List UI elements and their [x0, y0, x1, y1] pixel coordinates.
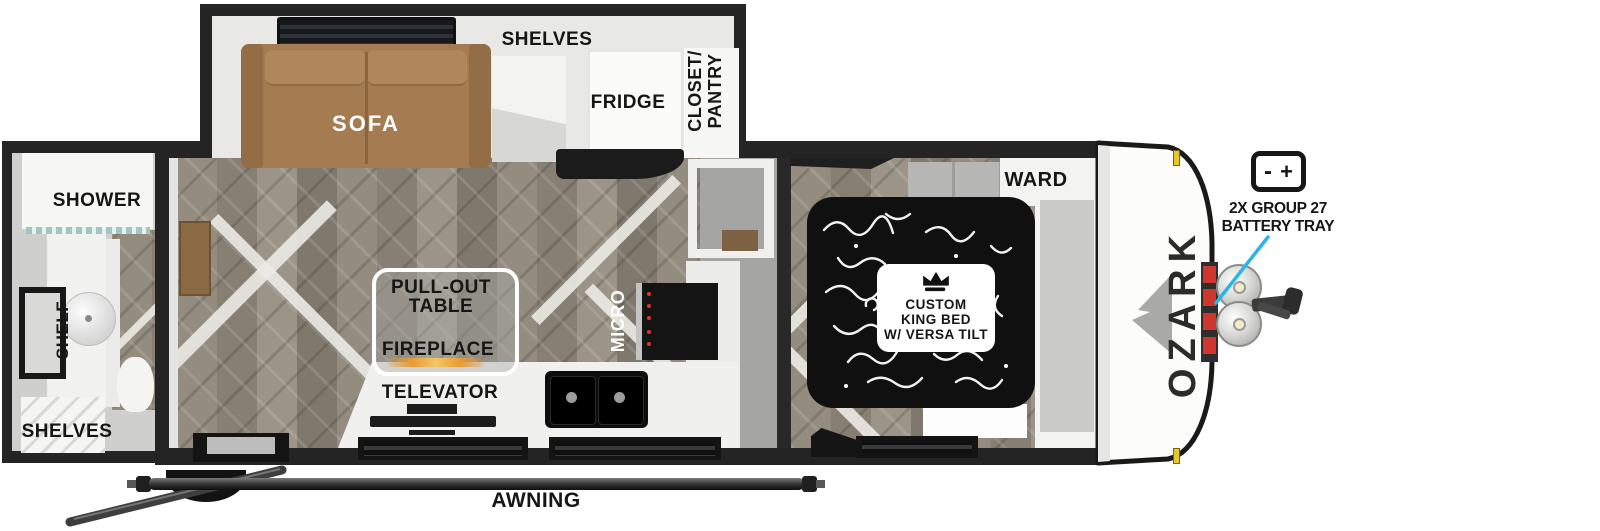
sofa-back-cushion — [265, 50, 365, 86]
microwave-led — [647, 316, 651, 320]
sink-faucet-dot — [614, 392, 625, 403]
kitchen-sink — [545, 371, 648, 428]
main-top-wall-right — [736, 141, 1106, 158]
clearance-light — [1173, 448, 1180, 464]
bedroom-divider-wall — [777, 158, 791, 448]
nook-shelf — [722, 230, 758, 251]
crown-icon — [920, 271, 952, 293]
nook-trim — [688, 159, 697, 258]
tank-valve — [1233, 318, 1246, 331]
step-rail — [60, 460, 290, 528]
awning-end-cap — [802, 476, 817, 492]
nook-trim — [688, 159, 774, 168]
sink-faucet-dot — [566, 392, 577, 403]
battery-icon: - + — [1251, 151, 1306, 192]
shower-label: SHOWER — [37, 191, 157, 212]
fridge-label: FRIDGE — [568, 93, 688, 114]
window — [549, 437, 721, 460]
microwave-led — [647, 330, 651, 334]
microwave — [636, 283, 718, 360]
sofa-arm-left — [241, 44, 263, 168]
fireplace-label: FIREPLACE — [358, 340, 518, 361]
battery-tray-label-line1: 2X GROUP 27 — [1212, 200, 1344, 217]
rv-floorplan: SHOWER SHELF SHELVES SOFA SHELVES FRIDGE… — [0, 0, 1600, 531]
sofa-label: SOFA — [306, 112, 426, 136]
microwave-led — [647, 304, 651, 308]
king-bed-line1: CUSTOM — [877, 298, 995, 313]
shower-glass — [26, 227, 150, 234]
ward-label: WARD — [976, 169, 1096, 191]
slide-shelves-unit — [492, 56, 566, 162]
closet-pantry-line1: CLOSET/ — [686, 31, 706, 151]
clearance-light — [1173, 150, 1180, 166]
microwave-led — [647, 342, 651, 346]
bed-base — [923, 404, 1027, 438]
slide-shelves-face — [492, 108, 566, 162]
bath-shelves-label: SHELVES — [6, 422, 128, 443]
living-left-wall-trim — [169, 158, 178, 448]
window — [856, 436, 978, 458]
entry-door-opening — [193, 433, 289, 462]
interior-door — [179, 221, 211, 296]
televator-tv — [370, 416, 496, 427]
king-bed-line2: KING BED — [877, 313, 995, 328]
closet-pantry-line2: PANTRY — [706, 31, 726, 151]
entry-door-slab — [207, 437, 275, 454]
wardrobe — [1035, 158, 1096, 448]
microwave-led — [647, 292, 651, 296]
awning-knob — [816, 480, 825, 488]
televator-label: TELEVATOR — [360, 383, 520, 404]
slide-shelves-label: SHELVES — [487, 30, 607, 51]
sofa — [241, 44, 491, 168]
microwave-trim — [636, 283, 642, 360]
toilet — [117, 357, 154, 412]
sofa-seat-seam — [365, 52, 368, 164]
battery-callout-line — [1210, 232, 1275, 307]
sofa-arm-right — [469, 44, 491, 168]
king-bed-callout: CUSTOM KING BED W/ VERSA TILT — [877, 264, 995, 352]
awning-knob — [127, 480, 136, 488]
nook-trim — [764, 159, 774, 257]
battery-tray-red-mark — [1203, 337, 1216, 354]
wardrobe-panel — [1040, 200, 1094, 432]
battery-tray-red-mark — [1203, 313, 1216, 330]
closet-pantry-label: CLOSET/ PANTRY — [686, 31, 730, 151]
televator-tv — [409, 430, 455, 435]
micro-label: MICRO — [609, 271, 629, 371]
battery-minus-sign: - — [1264, 160, 1272, 184]
sofa-back-cushion — [367, 50, 467, 86]
window — [358, 437, 528, 460]
pullout-label-line2: TABLE — [361, 297, 521, 318]
televator-tv — [407, 404, 457, 414]
king-bed-line3: W/ VERSA TILT — [877, 328, 995, 343]
shelf-label: SHELF — [54, 290, 74, 370]
bath-sink-drain — [85, 315, 92, 322]
awning-label: AWNING — [456, 489, 616, 512]
battery-plus-sign: + — [1280, 161, 1293, 183]
